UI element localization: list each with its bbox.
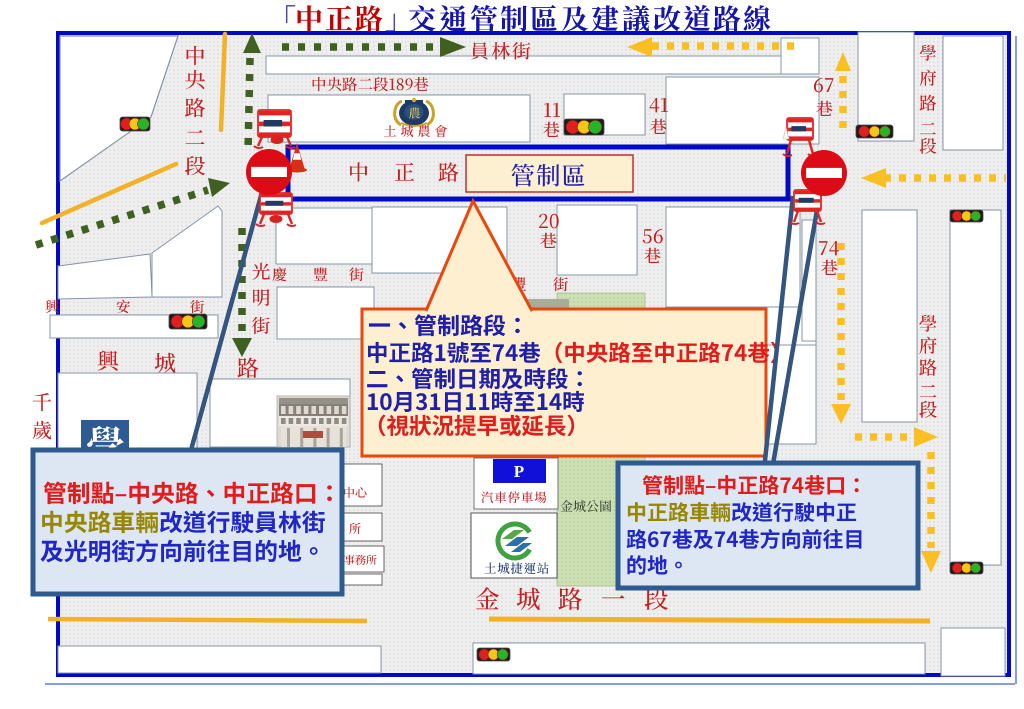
svg-text:P: P bbox=[514, 462, 524, 481]
